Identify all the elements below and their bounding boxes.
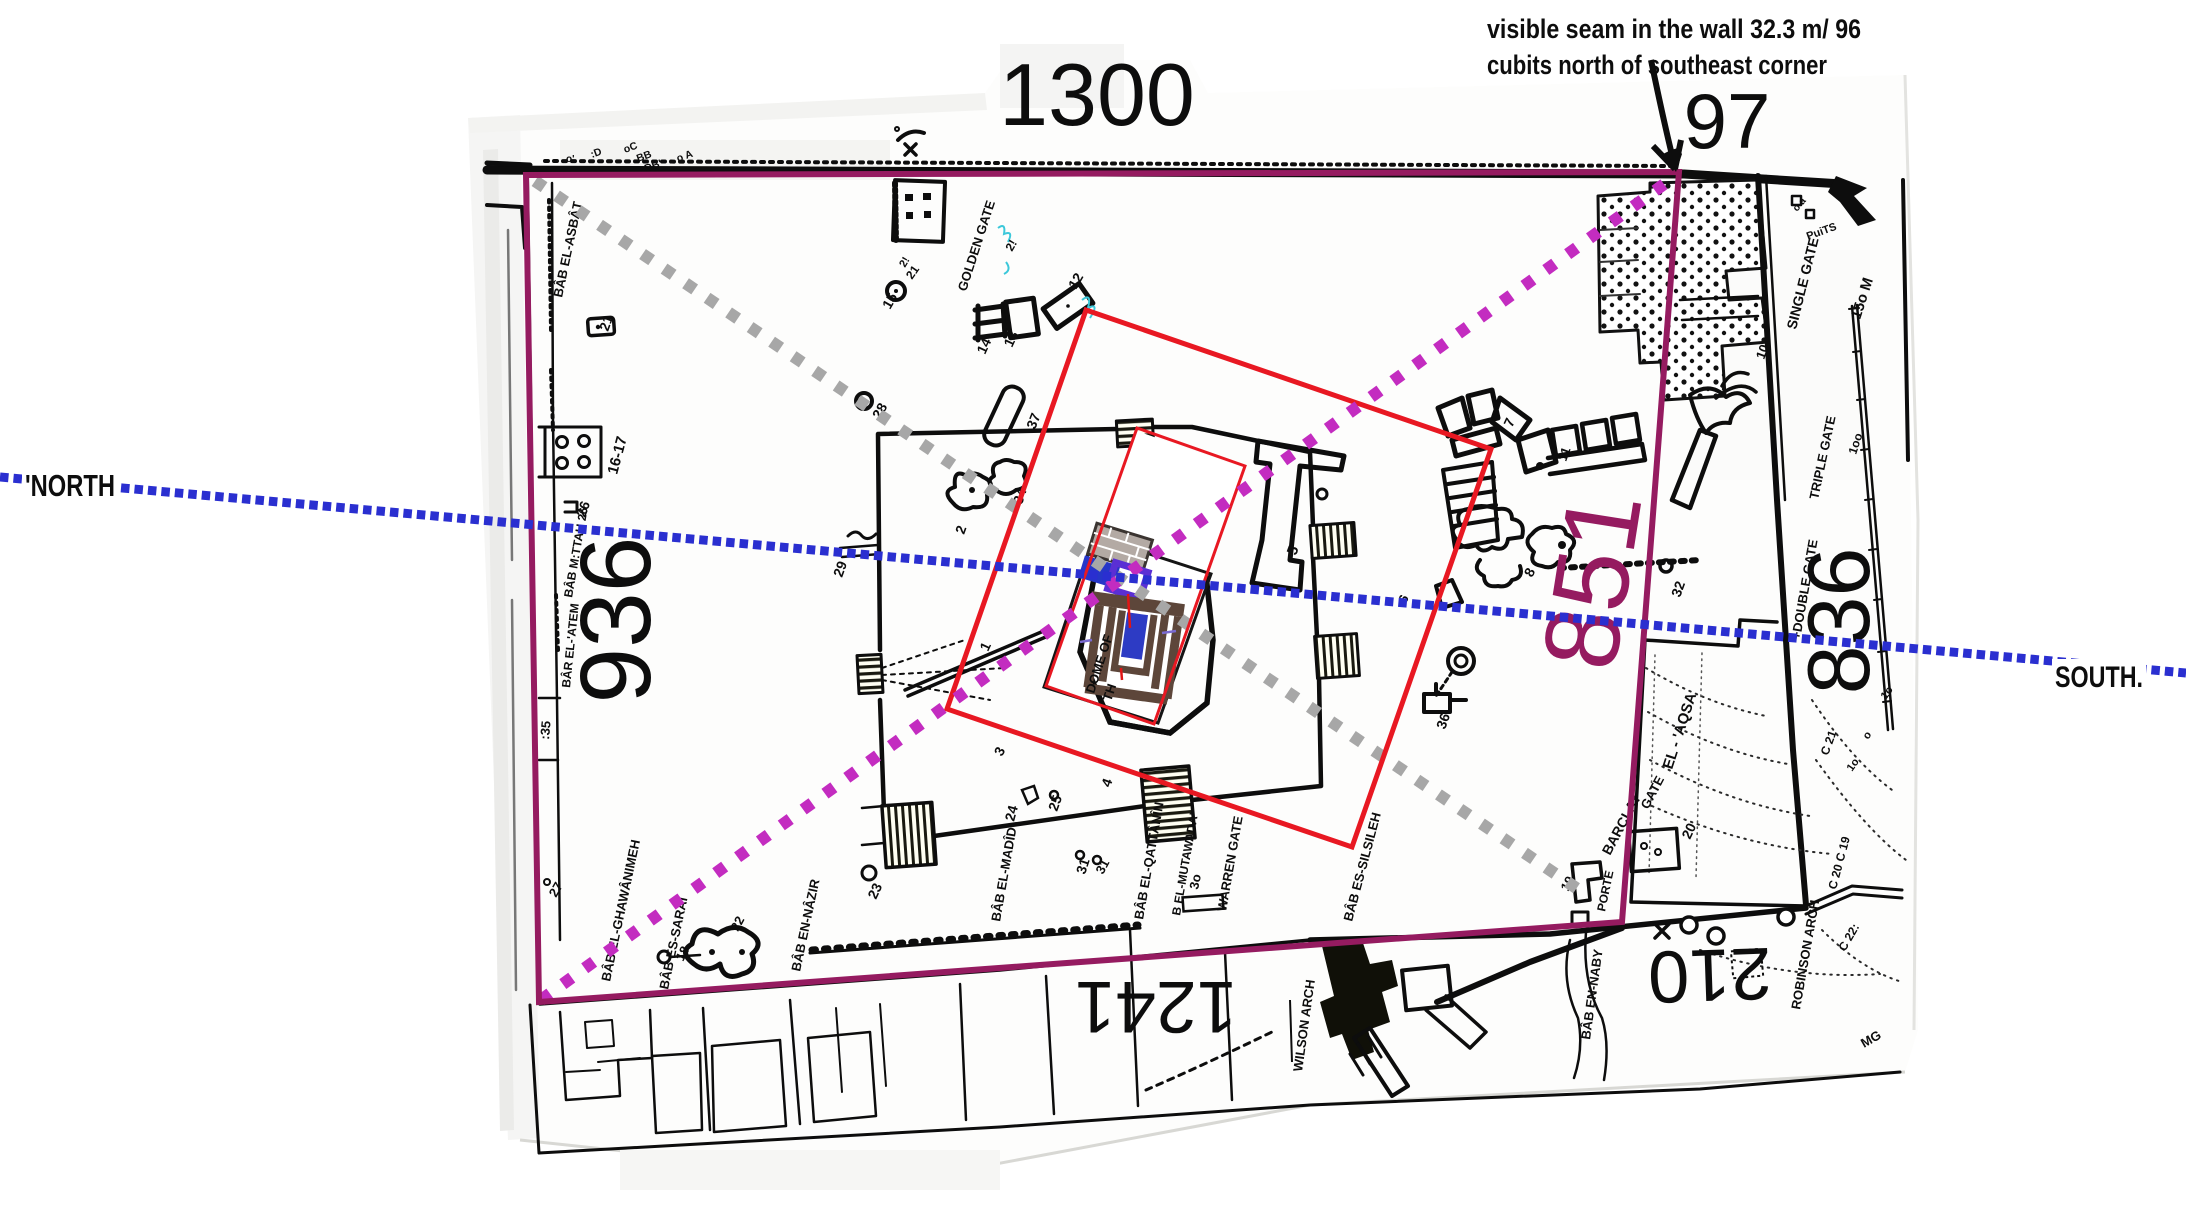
svg-text:3o: 3o: [1186, 873, 1204, 891]
svg-text:1300: 1300: [999, 45, 1195, 144]
svg-text:210: 210: [1647, 932, 1773, 1019]
svg-text:visible seam in the wall 32.3: visible seam in the wall 32.3 m/ 96: [1487, 14, 1861, 44]
svg-text:SOUTH.: SOUTH.: [2055, 661, 2143, 694]
svg-text:936: 936: [560, 537, 672, 704]
svg-text::35: :35: [537, 720, 554, 740]
svg-text:97: 97: [1684, 77, 1771, 165]
svg-text:o': o': [566, 154, 575, 165]
svg-text:1241: 1241: [1075, 966, 1237, 1047]
svg-text:836: 836: [1789, 548, 1888, 695]
svg-text:'NORTH: 'NORTH: [25, 468, 115, 503]
